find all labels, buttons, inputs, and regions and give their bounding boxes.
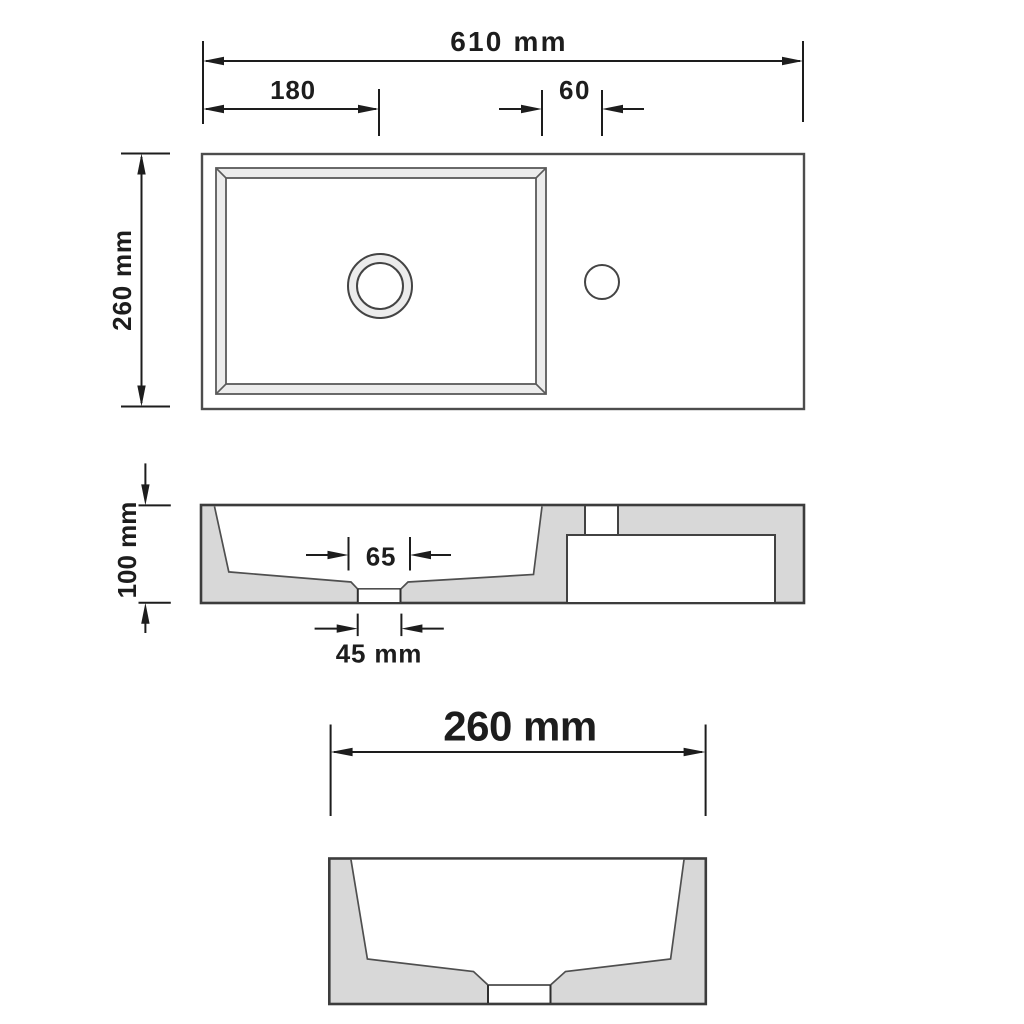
- svg-text:100 mm: 100 mm: [112, 502, 142, 599]
- svg-text:45 mm: 45 mm: [336, 639, 422, 669]
- svg-text:260 mm: 260 mm: [443, 703, 596, 750]
- svg-text:180: 180: [270, 75, 316, 105]
- svg-text:260 mm: 260 mm: [107, 229, 137, 331]
- svg-text:610 mm: 610 mm: [450, 26, 568, 57]
- svg-text:60: 60: [559, 75, 591, 105]
- svg-text:65: 65: [366, 542, 397, 572]
